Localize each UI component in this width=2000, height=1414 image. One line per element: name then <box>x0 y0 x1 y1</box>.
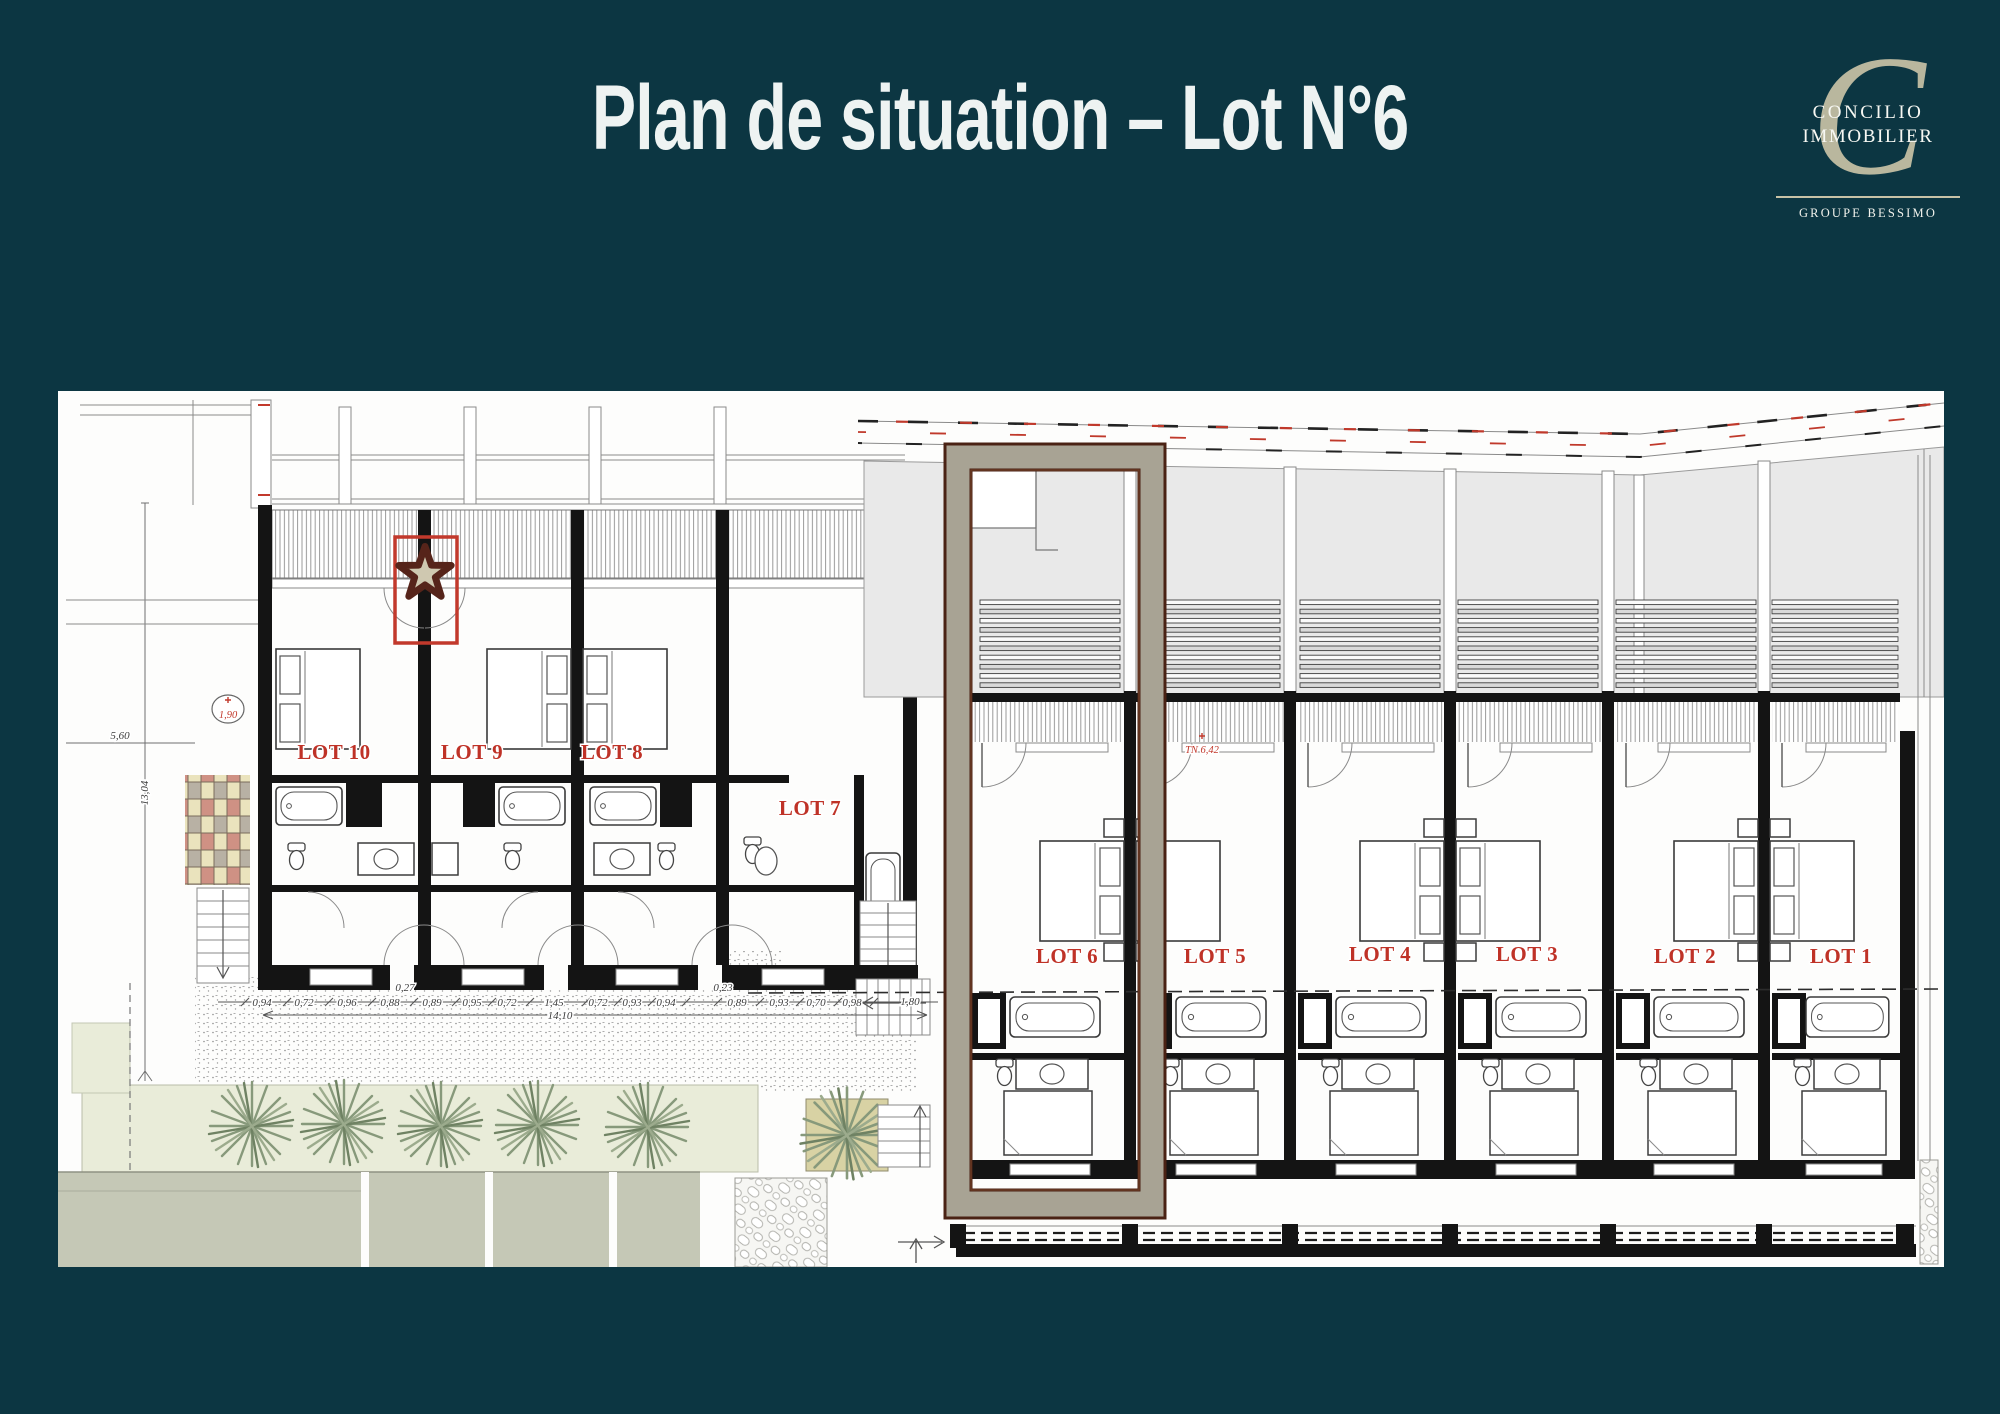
lot-label-8: LOT 8 <box>581 740 643 764</box>
svg-text:0,93: 0,93 <box>622 997 642 1009</box>
page-title: Plan de situation – Lot N°6 <box>592 66 1409 171</box>
lot-label-1: LOT 1 <box>1810 944 1872 968</box>
lot-label-7: LOT 7 <box>779 796 841 820</box>
walkway-stairs-lower <box>878 1105 930 1167</box>
svg-text:0,94: 0,94 <box>252 997 272 1009</box>
svg-text:1,45: 1,45 <box>544 997 564 1009</box>
level-marker: 1,90 <box>212 695 244 723</box>
lot-label-4: LOT 4 <box>1349 942 1411 966</box>
svg-text:0,93: 0,93 <box>769 997 789 1009</box>
svg-text:TN 6,42: TN 6,42 <box>1185 745 1220 756</box>
dim-left-vertical: 13,04 <box>139 780 151 805</box>
lot-label-6: LOT 6 <box>1036 944 1098 968</box>
page-title-wrap: Plan de situation – Lot N°6 <box>0 66 2000 171</box>
svg-text:1,80: 1,80 <box>900 996 920 1008</box>
lot-label-5: LOT 5 <box>1184 944 1246 968</box>
lot-label-10: LOT 10 <box>297 740 370 764</box>
svg-text:0,88: 0,88 <box>380 997 400 1009</box>
slide: { "slide": { "title": "Plan de situation… <box>0 0 2000 1414</box>
floor-plan: 1,90 TN 6,42 5,60 13,04 0,94 0,72 0,96 0… <box>58 391 1944 1267</box>
dim-total: 14,10 <box>548 1010 573 1022</box>
svg-text:0,94: 0,94 <box>656 997 676 1009</box>
svg-text:0,96: 0,96 <box>337 997 357 1009</box>
svg-text:0,89: 0,89 <box>422 997 442 1009</box>
lot-label-9: LOT 9 <box>441 740 503 764</box>
logo-group-name: GROUPE BESSIMO <box>1782 206 1954 221</box>
svg-text:0,72: 0,72 <box>294 997 314 1009</box>
logo-divider <box>1776 196 1960 198</box>
svg-text:0,70: 0,70 <box>806 997 826 1009</box>
logo-name-line1: CONCILIO <box>1782 102 1954 124</box>
dim-left: 5,60 <box>110 730 130 742</box>
svg-text:1,90: 1,90 <box>219 710 238 721</box>
lot-label-3: LOT 3 <box>1496 942 1558 966</box>
exterior-stairs <box>197 888 249 983</box>
svg-text:0,72: 0,72 <box>588 997 608 1009</box>
svg-text:0,23: 0,23 <box>713 982 733 994</box>
svg-text:0,98: 0,98 <box>842 997 862 1009</box>
company-logo: C CONCILIO IMMOBILIER GROUPE BESSIMO <box>1782 56 1954 226</box>
logo-name-line2: IMMOBILIER <box>1782 126 1954 148</box>
tiled-entry <box>185 775 250 885</box>
svg-text:0,95: 0,95 <box>462 997 482 1009</box>
svg-text:0,27: 0,27 <box>395 982 415 994</box>
svg-text:0,72: 0,72 <box>497 997 517 1009</box>
svg-text:0,89: 0,89 <box>727 997 747 1009</box>
floor-plan-sheet: 1,90 TN 6,42 5,60 13,04 0,94 0,72 0,96 0… <box>58 391 1944 1267</box>
lot-label-2: LOT 2 <box>1654 944 1716 968</box>
